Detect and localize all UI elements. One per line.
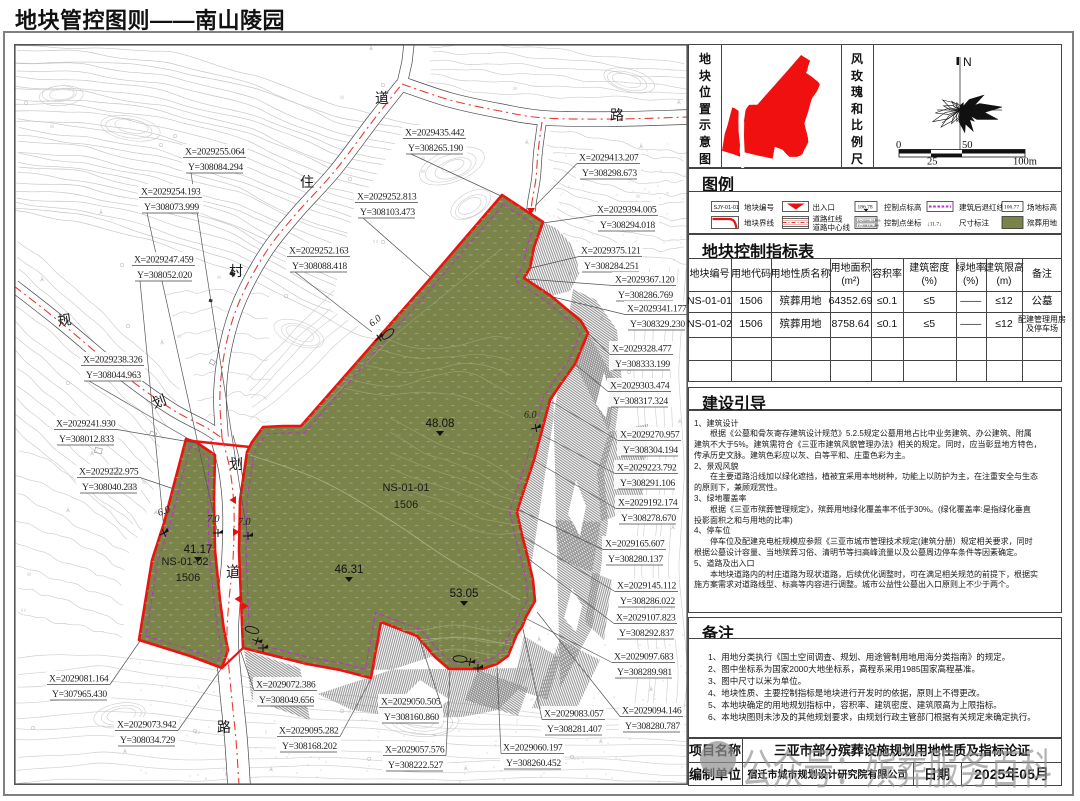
svg-text:X=2029060.197: X=2029060.197	[503, 743, 563, 754]
svg-text:Y=308040.233: Y=308040.233	[82, 482, 137, 493]
svg-text:道: 道	[375, 90, 389, 106]
svg-text:Y=308329.230: Y=308329.230	[630, 319, 685, 330]
svg-text:X=2029133.903: X=2029133.903	[858, 219, 881, 223]
svg-text:Y=308298.673: Y=308298.673	[582, 168, 637, 179]
svg-text:X=2029057.576: X=2029057.576	[385, 745, 445, 756]
svg-text:X=2029095.282: X=2029095.282	[279, 726, 339, 737]
svg-text:路: 路	[610, 107, 624, 123]
svg-text:殡葬用地: 殡葬用地	[1027, 218, 1057, 228]
svg-text:X=2029238.326: X=2029238.326	[83, 355, 143, 366]
svg-text:X=2029328.477: X=2029328.477	[612, 344, 672, 355]
svg-text:Y=308304.194: Y=308304.194	[623, 445, 678, 456]
svg-text:Y=308088.418: Y=308088.418	[292, 261, 347, 272]
svg-text:Y=308168.202: Y=308168.202	[282, 741, 337, 752]
svg-text:25: 25	[927, 157, 938, 168]
svg-text:X=2029165.607: X=2029165.607	[605, 539, 665, 550]
svg-text:Y=308084.294: Y=308084.294	[188, 162, 243, 173]
svg-text:Y=308012.833: Y=308012.833	[59, 434, 114, 445]
svg-text:Y=308103.473: Y=308103.473	[360, 207, 415, 218]
svg-text:Y=308160.860: Y=308160.860	[384, 712, 439, 723]
svg-text:Y=308073.999: Y=308073.999	[144, 202, 199, 213]
svg-text:SJY-01-01: SJY-01-01	[714, 205, 739, 211]
svg-text:X=2029252.163: X=2029252.163	[289, 246, 349, 257]
svg-text:Y=308286.022: Y=308286.022	[620, 596, 675, 607]
svg-text:Y=308280.137: Y=308280.137	[608, 554, 663, 565]
svg-text:Y=308265.190: Y=308265.190	[408, 143, 463, 154]
svg-text:控制点坐标: 控制点坐标	[884, 218, 922, 228]
svg-text:规: 规	[56, 311, 72, 329]
svg-text:53.05: 53.05	[450, 588, 479, 600]
svg-text:100m: 100m	[1013, 157, 1037, 168]
svg-text:住: 住	[300, 174, 314, 190]
svg-text:N: N	[963, 55, 972, 69]
svg-text:Y=308281.407: Y=308281.407	[547, 724, 602, 735]
svg-text:Y=308333.199: Y=308333.199	[615, 359, 670, 370]
svg-text:X=2029192.174: X=2029192.174	[618, 498, 678, 509]
svg-text:↓11.7↓: ↓11.7↓	[927, 222, 942, 228]
svg-text:X=2029241.930: X=2029241.930	[56, 419, 116, 430]
svg-text:6.0: 6.0	[524, 410, 537, 421]
svg-text:X=2029247.459: X=2029247.459	[134, 255, 194, 266]
svg-text:X=2029413.207: X=2029413.207	[579, 153, 639, 164]
svg-text:X=2029094.146: X=2029094.146	[622, 706, 682, 717]
svg-text:Y=308336.294: Y=308336.294	[858, 224, 879, 228]
svg-text:106.77: 106.77	[1004, 205, 1019, 211]
svg-text:7.0: 7.0	[207, 514, 220, 525]
svg-text:Y=307965.430: Y=307965.430	[52, 689, 107, 700]
svg-text:Y=308044.963: Y=308044.963	[86, 370, 141, 381]
svg-text:7.0: 7.0	[238, 517, 251, 528]
svg-text:1506: 1506	[394, 499, 418, 511]
svg-text:X=2029254.193: X=2029254.193	[141, 187, 201, 198]
svg-text:X=2029255.064: X=2029255.064	[185, 147, 245, 158]
svg-text:划: 划	[229, 456, 243, 472]
svg-text:NS-01-01: NS-01-01	[382, 482, 429, 494]
svg-text:Y=308286.769: Y=308286.769	[618, 290, 673, 301]
svg-text:路: 路	[217, 719, 231, 735]
svg-text:Y=308284.251: Y=308284.251	[584, 261, 639, 272]
svg-text:X=2029050.505: X=2029050.505	[381, 697, 441, 708]
svg-text:X=2029252.813: X=2029252.813	[357, 192, 417, 203]
svg-text:X=2029341.177: X=2029341.177	[627, 304, 687, 315]
svg-text:X=2029145.112: X=2029145.112	[617, 581, 677, 592]
svg-text:建筑后退红线: 建筑后退红线	[959, 202, 1004, 212]
svg-text:Y=308291.106: Y=308291.106	[620, 478, 675, 489]
svg-text:X=2029303.474: X=2029303.474	[610, 381, 670, 392]
svg-text:50: 50	[962, 140, 973, 151]
svg-text:Y=308292.837: Y=308292.837	[619, 628, 674, 639]
svg-text:NS-01-02: NS-01-02	[161, 556, 208, 568]
svg-text:道路中心线: 道路中心线	[813, 222, 851, 232]
svg-text:Y=308317.324: Y=308317.324	[613, 396, 668, 407]
svg-text:道路红线: 道路红线	[813, 214, 843, 224]
svg-text:Y=308294.018: Y=308294.018	[600, 220, 655, 231]
svg-text:X=2029222.975: X=2029222.975	[79, 467, 139, 478]
svg-text:场地标高: 场地标高	[1027, 202, 1057, 212]
svg-text:地块编号: 地块编号	[744, 202, 774, 212]
svg-text:Y=308280.787: Y=308280.787	[625, 721, 680, 732]
svg-text:X=2029270.957: X=2029270.957	[620, 430, 680, 441]
svg-text:Y=308222.527: Y=308222.527	[388, 760, 443, 771]
svg-text:地块界线: 地块界线	[744, 218, 774, 228]
svg-text:控制点标高: 控制点标高	[884, 202, 922, 212]
svg-text:48.08: 48.08	[426, 418, 455, 430]
svg-text:41.17: 41.17	[184, 544, 213, 556]
svg-text:Y=308278.670: Y=308278.670	[621, 513, 676, 524]
svg-text:X=2029375.121: X=2029375.121	[581, 246, 641, 257]
svg-text:46.31: 46.31	[335, 564, 364, 576]
svg-text:道: 道	[226, 564, 240, 580]
svg-text:X=2029367.120: X=2029367.120	[615, 275, 675, 286]
svg-text:0: 0	[896, 140, 901, 151]
svg-text:出入口: 出入口	[813, 202, 836, 212]
svg-text:X=2029072.386: X=2029072.386	[256, 680, 316, 691]
svg-text:X=2029223.792: X=2029223.792	[617, 463, 677, 474]
svg-text:Y=308049.656: Y=308049.656	[259, 695, 314, 706]
svg-text:村: 村	[229, 263, 243, 279]
svg-text:X=2029435.442: X=2029435.442	[405, 128, 465, 139]
svg-text:X=2029394.005: X=2029394.005	[597, 205, 657, 216]
svg-text:Y=308260.452: Y=308260.452	[506, 758, 561, 769]
svg-text:尺寸标注: 尺寸标注	[959, 218, 989, 228]
svg-text:X=2029081.164: X=2029081.164	[49, 674, 109, 685]
svg-text:X=2029097.683: X=2029097.683	[614, 652, 674, 663]
svg-text:Y=308034.729: Y=308034.729	[120, 735, 175, 746]
svg-text:X=2029073.942: X=2029073.942	[117, 720, 177, 731]
svg-text:X=2029083.057: X=2029083.057	[544, 709, 604, 720]
svg-text:Y=308289.981: Y=308289.981	[617, 667, 672, 678]
svg-text:Y=308052.020: Y=308052.020	[137, 270, 192, 281]
svg-text:X=2029107.823: X=2029107.823	[616, 613, 676, 624]
svg-text:1506: 1506	[176, 572, 200, 584]
